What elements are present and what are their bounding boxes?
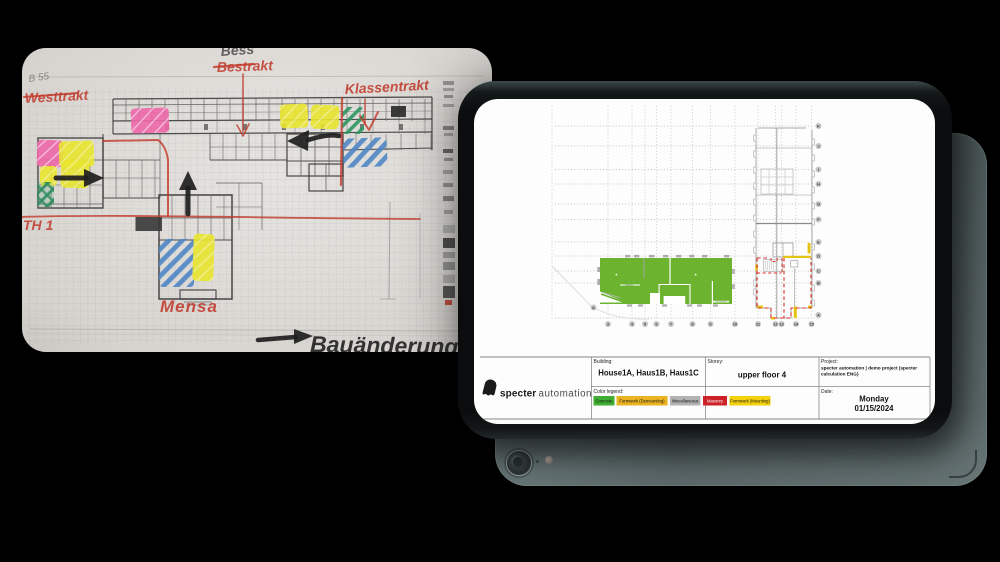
svg-text:Storey:: Storey: [708,359,724,365]
svg-text:Formwork (Mounting): Formwork (Mounting) [730,398,770,403]
svg-text:A: A [592,305,595,310]
svg-text:upper floor 4: upper floor 4 [738,371,787,380]
svg-text:G: G [817,202,820,207]
svg-text:12: 12 [773,322,778,327]
svg-text:Building:: Building: [594,359,613,365]
svg-text:13: 13 [779,322,784,327]
svg-text:E: E [817,240,820,245]
svg-text:TH 1: TH 1 [23,217,54,233]
svg-text:Formwork (Demounting): Formwork (Demounting) [619,398,665,403]
svg-text:I: I [818,167,819,172]
svg-text:H: H [817,182,820,187]
svg-text:Masonry: Masonry [707,398,724,403]
svg-text:Monday: Monday [859,395,889,404]
svg-text:K: K [817,124,820,129]
svg-text:01/15/2024: 01/15/2024 [854,404,894,413]
svg-text:specter: specter [500,389,536,400]
svg-text:A: A [817,313,820,318]
svg-text:Project:: Project: [821,359,838,365]
svg-text:automation: automation [539,389,592,400]
svg-text:D: D [817,254,820,259]
svg-text:C: C [817,269,820,274]
svg-text:Concrete: Concrete [596,398,614,403]
svg-text:specter automation | demo proj: specter automation | demo project (spect… [821,366,917,371]
svg-text:Color legend:: Color legend: [594,389,624,395]
svg-text:10: 10 [733,322,738,327]
svg-text:15: 15 [809,322,814,327]
svg-text:House1A, Haus1B, Haus1C: House1A, Haus1B, Haus1C [598,369,699,378]
svg-text:calculation ENG): calculation ENG) [821,372,859,377]
svg-text:Miscellaneous: Miscellaneous [672,398,699,403]
svg-text:J: J [817,144,819,149]
svg-text:B: B [817,281,820,286]
svg-text:Mensa: Mensa [160,297,218,316]
svg-text:14: 14 [794,322,799,327]
svg-text:Date:: Date: [821,389,833,395]
